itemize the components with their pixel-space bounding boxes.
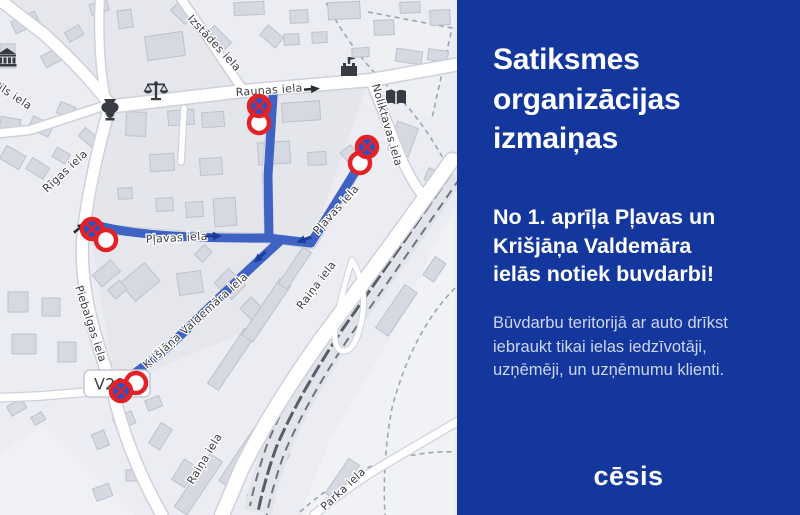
no-stopping-sign [249,96,269,116]
no-stopping-sign [357,137,377,157]
cesis-logo: cēsis [457,461,800,492]
announcement-panel: Satiksmes organizācijas izmaiņas No 1. a… [457,0,800,515]
city-map: Izstādes iela Raunas iela Noliktavas iel… [0,0,457,515]
announcement-subtitle: No 1. aprīļa Pļavas un Krišjāņa Valdemār… [493,203,745,289]
no-stopping-sign [111,381,131,401]
announcement-body: Būvdarbu teritorijā ar auto drīkst iebra… [493,312,770,383]
road-closed-sign [96,230,116,250]
announcement-graphic: Izstādes iela Raunas iela Noliktavas iel… [0,0,800,515]
page-title: Satiksmes organizācijas izmaiņas [493,40,766,159]
map-canvas: Izstādes iela Raunas iela Noliktavas iel… [0,0,457,515]
